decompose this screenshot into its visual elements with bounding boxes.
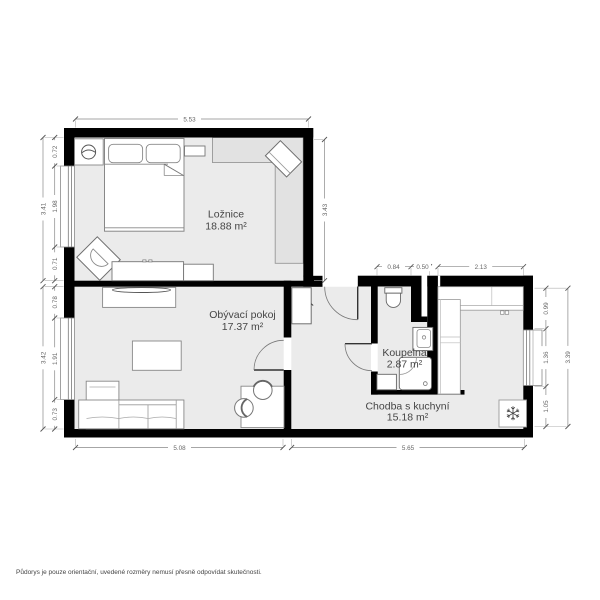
svg-text:3.42: 3.42 [40, 351, 47, 364]
svg-text:1.91: 1.91 [52, 352, 59, 365]
svg-text:5.65: 5.65 [402, 445, 415, 452]
svg-text:5.53: 5.53 [183, 116, 196, 123]
svg-text:3.43: 3.43 [322, 203, 329, 216]
svg-text:15.18 m²: 15.18 m² [387, 412, 429, 424]
svg-text:0.50: 0.50 [416, 264, 429, 271]
svg-text:Obývací pokoj: Obývací pokoj [209, 309, 276, 321]
svg-text:0.72: 0.72 [52, 145, 59, 158]
svg-text:5.08: 5.08 [173, 445, 186, 452]
svg-text:Půdorys je pouze orientační, u: Půdorys je pouze orientační, uvedené roz… [16, 568, 262, 576]
svg-text:Koupelna: Koupelna [382, 347, 427, 359]
svg-text:1.98: 1.98 [52, 200, 59, 213]
svg-text:Ložnice: Ložnice [208, 209, 244, 221]
svg-text:3.39: 3.39 [565, 351, 572, 364]
svg-text:17.37 m²: 17.37 m² [222, 321, 264, 333]
svg-text:0.71: 0.71 [52, 257, 59, 270]
svg-text:0.78: 0.78 [52, 296, 59, 309]
svg-text:2.13: 2.13 [475, 264, 488, 271]
svg-text:18.88 m²: 18.88 m² [205, 221, 247, 233]
svg-text:1.05: 1.05 [543, 400, 550, 413]
svg-text:0.99: 0.99 [543, 302, 550, 315]
svg-text:1.36: 1.36 [543, 351, 550, 364]
svg-text:0.84: 0.84 [387, 264, 400, 271]
svg-text:0.73: 0.73 [52, 408, 59, 421]
svg-text:3.41: 3.41 [40, 202, 47, 215]
svg-text:2.87 m²: 2.87 m² [387, 359, 423, 371]
